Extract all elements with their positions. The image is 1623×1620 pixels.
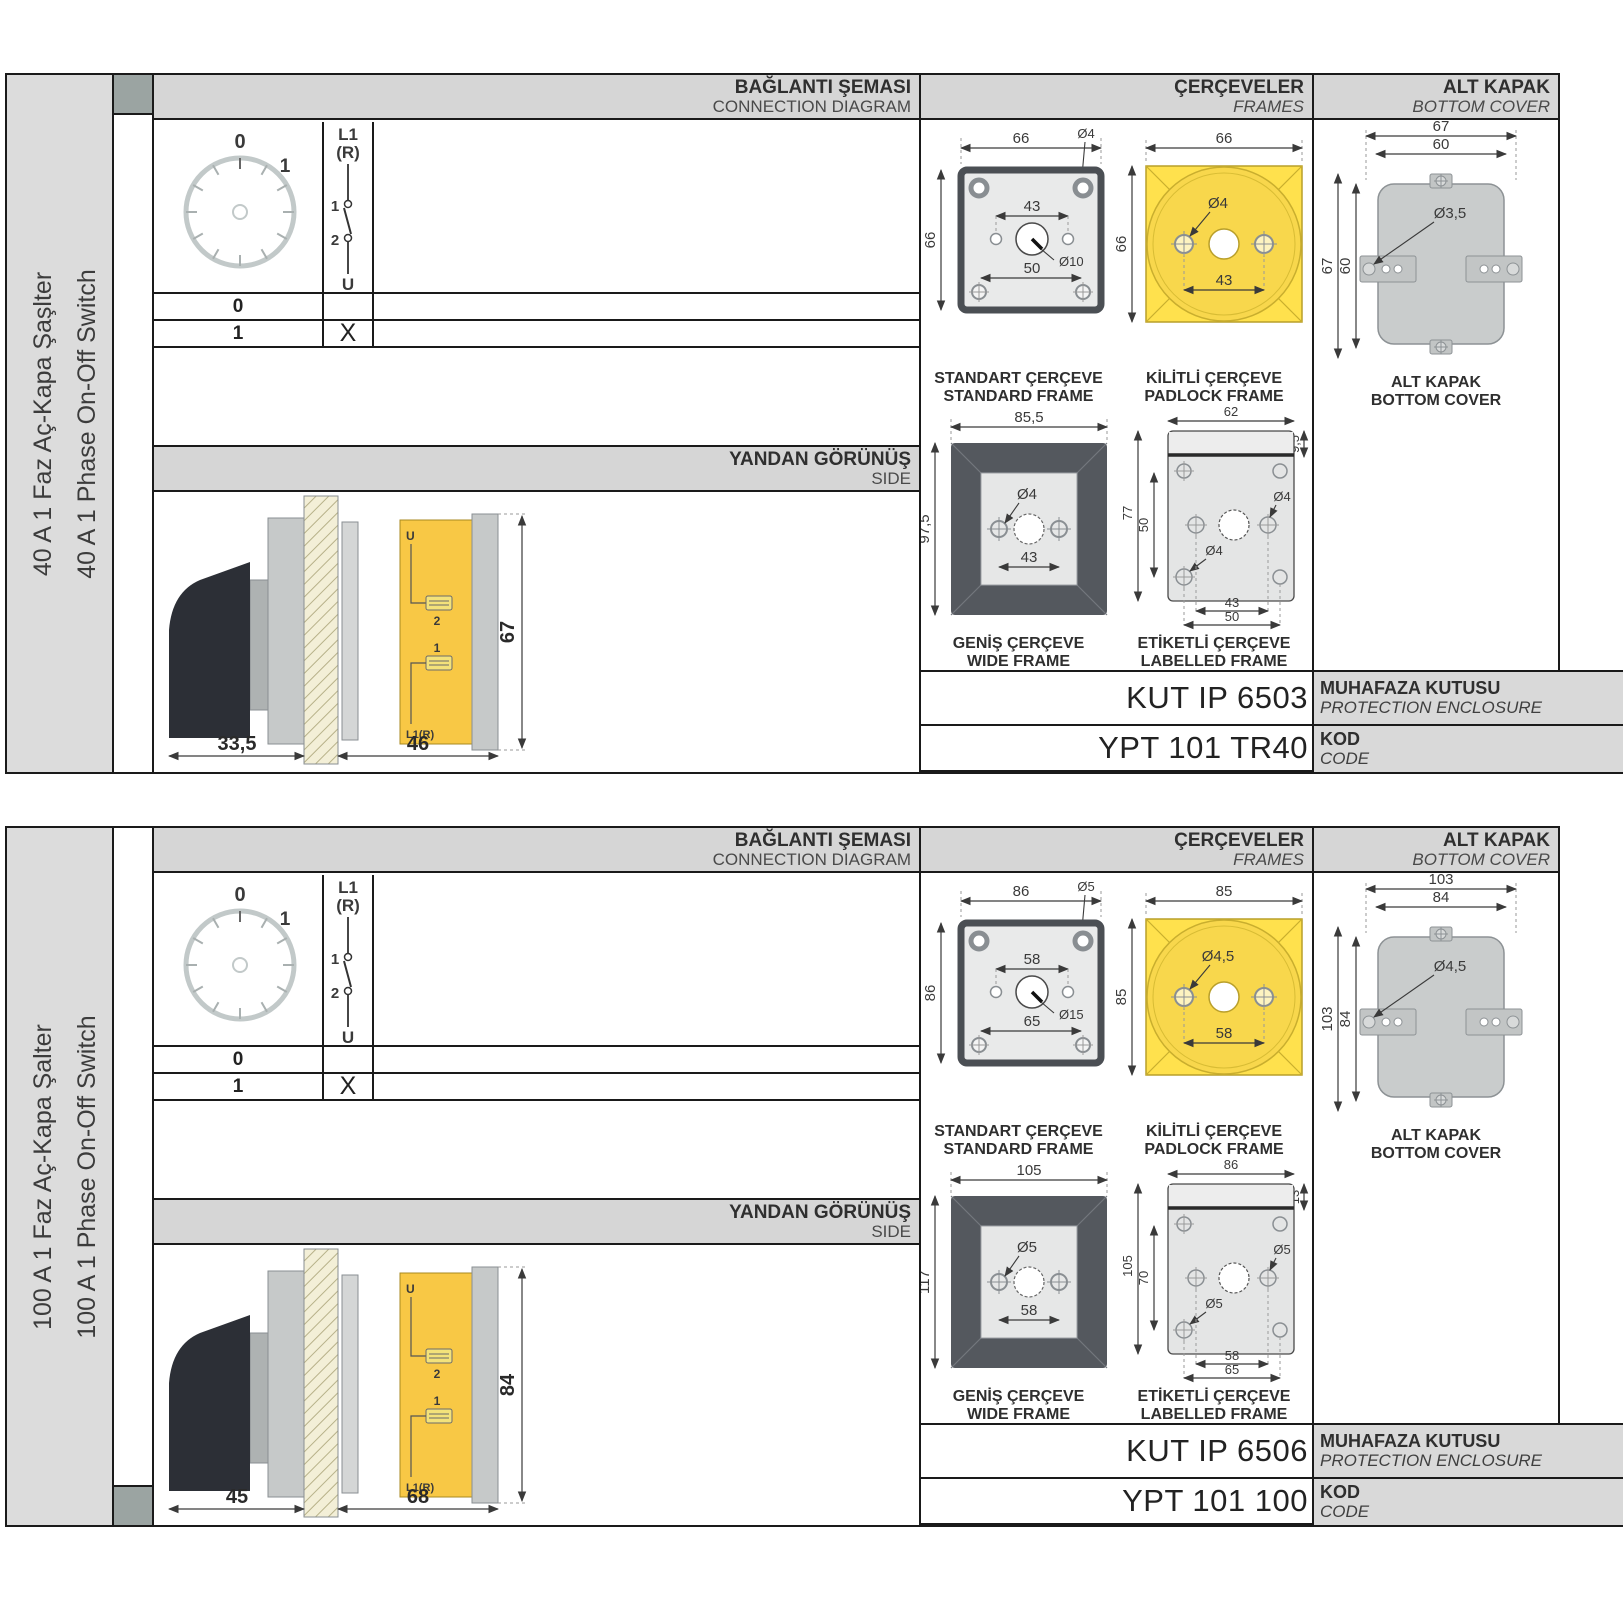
side-view-drawing: U 2 1 L1(R) 33,5 46 67	[154, 492, 919, 772]
frames-title-tr: ÇERÇEVELER	[1174, 831, 1304, 851]
connection-title-tr: BAĞLANTI ŞEMASI	[735, 78, 911, 98]
labelled-frame-caption: ETİKETLİ ÇERÇEVE LABELLED FRAME	[1138, 1388, 1291, 1425]
dial-drawing: 0 1	[154, 122, 322, 292]
phase-label-l1: L1	[338, 125, 358, 144]
padlock-frame-block: 66 66 Ø4	[1116, 120, 1312, 407]
standard-frame-drawing: 86 Ø5 86 58	[921, 873, 1116, 1121]
product-name-turkish: 40 A 1 Faz Aç-Kapa Şaşlter	[29, 271, 58, 575]
lab-dim-width: 86	[1224, 1158, 1238, 1172]
product-name-column: 40 A 1 Faz Aç-Kapa Şaşlter 40 A 1 Phase …	[7, 75, 114, 772]
product-code-cell: YPT 101 TR40	[921, 724, 1312, 772]
panel-main: BAĞLANTI ŞEMASI CONNECTION DIAGRAM ÇERÇE…	[154, 75, 1558, 772]
padlock-frame-drawing: 85 85 Ø4,5	[1116, 873, 1312, 1121]
product-name-english: 100 A 1 Phase On-Off Switch	[73, 1015, 102, 1338]
padlock-frame-caption-tr: KİLİTLİ ÇERÇEVE	[1144, 370, 1283, 388]
lab-dim-spacing2: 65	[1225, 1362, 1239, 1377]
side-view-drawing: U 2 1 L1(R) 45 68 84	[154, 1245, 919, 1525]
padlock-frame-drawing: 66 66 Ø4	[1116, 120, 1312, 368]
labelled-frame-drawing: 86 13 105 70	[1116, 1158, 1312, 1386]
std-dim-top-spacing: 43	[1024, 198, 1041, 215]
bottom-cover-block: 103 84 103 84	[1314, 873, 1558, 1164]
wide-frame-caption-tr: GENİŞ ÇERÇEVE	[953, 1388, 1085, 1406]
std-dim-height: 86	[922, 985, 939, 1002]
cover-dim-h-outer: 67	[1319, 258, 1336, 275]
std-dim-hole: Ø4	[1077, 126, 1094, 141]
std-dim-top-spacing: 58	[1024, 951, 1041, 968]
position-0-contact	[324, 1047, 374, 1072]
frames-header: ÇERÇEVELER FRAMES	[919, 828, 1312, 873]
narrow-spacer-column	[114, 828, 154, 1525]
wide-dim-hole: Ø5	[1017, 1239, 1037, 1256]
terminal-1-label: 1	[331, 951, 339, 968]
frames-header: ÇERÇEVELER FRAMES	[919, 75, 1312, 120]
phase-label-r: (R)	[336, 143, 360, 162]
wide-frame-caption: GENİŞ ÇERÇEVE WIDE FRAME	[953, 1388, 1085, 1425]
std-dim-hole: Ø5	[1077, 879, 1094, 894]
connection-title-en: CONNECTION DIAGRAM	[713, 98, 911, 116]
product-code-cell: YPT 101 100	[921, 1477, 1312, 1525]
bottom-cover-caption-tr: ALT KAPAK	[1371, 374, 1501, 392]
wide-dim-width: 85,5	[1014, 409, 1043, 426]
product-name-turkish: 100 A 1 Faz Aç-Kapa Şalter	[29, 1024, 58, 1330]
frames-title-en: FRAMES	[1233, 98, 1304, 116]
output-label-u: U	[342, 275, 354, 292]
product-panel: 40 A 1 Faz Aç-Kapa Şaşlter 40 A 1 Phase …	[5, 73, 1560, 774]
cover-dim-h-inner: 84	[1337, 1011, 1354, 1028]
cover-dim-hole: Ø4,5	[1434, 958, 1467, 975]
cover-title-tr: ALT KAPAK	[1443, 831, 1550, 851]
bottom-cover-drawing: 103 84 103 84	[1314, 873, 1558, 1125]
dial-position-0: 0	[234, 131, 245, 153]
product-panel: 100 A 1 Faz Aç-Kapa Şalter 100 A 1 Phase…	[5, 826, 1560, 1527]
cover-title-tr: ALT KAPAK	[1443, 78, 1550, 98]
lab-dim-inner-height: 70	[1136, 1271, 1151, 1285]
std-dim-bottom-spacing: 65	[1024, 1013, 1041, 1030]
switch-dial-cell: 0 1	[154, 875, 324, 1045]
enclosure-label-en: PROTECTION ENCLOSURE	[1320, 699, 1623, 718]
wide-frame-caption-tr: GENİŞ ÇERÇEVE	[953, 635, 1085, 653]
dim-body-height: 84	[497, 1373, 519, 1396]
terminal-2-label: 2	[331, 232, 339, 249]
lab-dim-spacing1: 43	[1225, 595, 1239, 610]
pad-dim-width: 85	[1216, 883, 1233, 900]
phase-label-r: (R)	[336, 896, 360, 915]
padlock-frame-caption: KİLİTLİ ÇERÇEVE PADLOCK FRAME	[1144, 370, 1283, 407]
lab-dim-hole1: Ø4	[1273, 489, 1290, 504]
labelled-frame-drawing: 62 9,5 77 50	[1116, 405, 1312, 633]
standard-frame-caption: STANDART ÇERÇEVE STANDARD FRAME	[934, 370, 1103, 407]
switch-dial-cell: 0 1	[154, 122, 324, 292]
enclosure-label-en: PROTECTION ENCLOSURE	[1320, 1452, 1623, 1471]
lab-dim-hole1: Ø5	[1273, 1242, 1290, 1257]
standard-frame-block: 66 Ø4 66 43	[921, 120, 1116, 407]
side-terminal-u: U	[406, 529, 415, 543]
labelled-frame-block: 86 13 105 70	[1116, 1158, 1312, 1425]
side-terminal-2: 2	[434, 1367, 441, 1381]
lab-dim-spacing1: 58	[1225, 1348, 1239, 1363]
lab-dim-hole2: Ø4	[1205, 543, 1222, 558]
bottom-cover-caption: ALT KAPAK BOTTOM COVER	[1371, 1127, 1501, 1164]
wide-dim-height: 97,5	[921, 514, 933, 543]
standard-frame-drawing: 66 Ø4 66 43	[921, 120, 1116, 368]
std-dim-bottom-spacing: 50	[1024, 260, 1041, 277]
cover-dim-h-inner: 60	[1337, 258, 1354, 275]
wide-frame-drawing: 105 117 Ø5	[921, 1158, 1116, 1386]
cover-dim-w-inner: 60	[1433, 136, 1450, 153]
bottom-cover-block: 67 60 67 60	[1314, 120, 1558, 411]
lab-dim-height: 105	[1120, 1255, 1135, 1277]
dial-position-1: 1	[280, 156, 291, 177]
dial-position-1: 1	[280, 909, 291, 930]
standard-frame-block: 86 Ø5 86 58	[921, 873, 1116, 1160]
code-label-box: KOD CODE	[1312, 1477, 1623, 1527]
enclosure-code-value: KUT IP 6506	[1126, 1433, 1308, 1469]
wide-frame-block: 85,5 97,5 Ø4	[921, 405, 1116, 672]
wide-dim-hole: Ø4	[1017, 486, 1037, 503]
wide-frame-caption: GENİŞ ÇERÇEVE WIDE FRAME	[953, 635, 1085, 672]
switch-schematic-drawing: L1 (R) 1 2 U	[324, 875, 372, 1045]
labelled-frame-caption: ETİKETLİ ÇERÇEVE LABELLED FRAME	[1138, 635, 1291, 672]
dim-handle-depth: 45	[226, 1486, 248, 1508]
connection-diagram-box: 0 1 L1 (R) 1 2 U	[154, 875, 919, 1047]
product-code-value: YPT 101 TR40	[1098, 730, 1308, 766]
panel-main: BAĞLANTI ŞEMASI CONNECTION DIAGRAM ÇERÇE…	[154, 828, 1558, 1525]
enclosure-label-tr: MUHAFAZA KUTUSU	[1320, 1432, 1623, 1452]
padlock-frame-caption-tr: KİLİTLİ ÇERÇEVE	[1144, 1123, 1283, 1141]
position-row-1: 1 X	[154, 321, 919, 348]
cover-dim-w-inner: 84	[1433, 889, 1450, 906]
code-label-en: CODE	[1320, 1503, 1623, 1522]
standard-frame-caption-tr: STANDART ÇERÇEVE	[934, 370, 1103, 388]
switch-handle	[169, 562, 250, 738]
cover-title-en: BOTTOM COVER	[1412, 98, 1550, 116]
wide-frame-drawing: 85,5 97,5 Ø4	[921, 405, 1116, 633]
connection-diagram-box: 0 1 L1 (R) 1 2 U	[154, 122, 919, 294]
switch-schematic-cell: L1 (R) 1 2 U	[324, 875, 374, 1045]
lab-dim-hole2: Ø5	[1205, 1296, 1222, 1311]
bottom-cover-drawing: 67 60 67 60	[1314, 120, 1558, 372]
frames-title-tr: ÇERÇEVELER	[1174, 78, 1304, 98]
position-0-label: 0	[154, 294, 324, 319]
bottom-cover-caption-en: BOTTOM COVER	[1371, 1145, 1501, 1163]
enclosure-label-box: MUHAFAZA KUTUSU PROTECTION ENCLOSURE	[1312, 670, 1623, 726]
side-terminal-1: 1	[434, 641, 441, 655]
side-title-tr: YANDAN GÖRÜNÜŞ	[729, 1203, 911, 1223]
code-label-tr: KOD	[1320, 730, 1623, 750]
wide-dim-height: 117	[921, 1270, 933, 1294]
product-name-column: 100 A 1 Faz Aç-Kapa Şalter 100 A 1 Phase…	[7, 828, 114, 1525]
side-title-en: SIDE	[871, 1223, 911, 1241]
corner-marker-square	[114, 75, 152, 115]
position-row-0: 0	[154, 1047, 919, 1074]
connection-diagram-header: BAĞLANTI ŞEMASI CONNECTION DIAGRAM	[154, 828, 919, 873]
enclosure-label-tr: MUHAFAZA KUTUSU	[1320, 679, 1623, 699]
lab-dim-inner-height: 50	[1136, 518, 1151, 532]
terminal-2-label: 2	[331, 985, 339, 1002]
connection-title-tr: BAĞLANTI ŞEMASI	[735, 831, 911, 851]
padlock-frame-block: 85 85 Ø4,5	[1116, 873, 1312, 1160]
enclosure-label-box: MUHAFAZA KUTUSU PROTECTION ENCLOSURE	[1312, 1423, 1623, 1479]
corner-marker-square	[114, 1485, 152, 1525]
wide-dim-spacing: 43	[1021, 549, 1038, 566]
position-0-contact	[324, 294, 374, 319]
product-name-english: 40 A 1 Phase On-Off Switch	[73, 269, 102, 578]
pad-dim-spacing: 58	[1216, 1025, 1233, 1042]
cover-dim-w-outer: 67	[1433, 120, 1450, 135]
standard-frame-caption-tr: STANDART ÇERÇEVE	[934, 1123, 1103, 1141]
wide-dim-width: 105	[1016, 1162, 1041, 1179]
labelled-frame-block: 62 9,5 77 50	[1116, 405, 1312, 672]
phase-label-l1: L1	[338, 878, 358, 897]
dim-body-depth: 46	[407, 733, 429, 755]
lab-dim-height: 77	[1120, 506, 1135, 520]
cover-dim-w-outer: 103	[1428, 873, 1453, 888]
position-1-label: 1	[154, 1074, 324, 1099]
side-view-header: YANDAN GÖRÜNÜŞ SIDE	[154, 1198, 919, 1245]
cover-dim-h-outer: 103	[1319, 1006, 1336, 1031]
std-dim-width: 66	[1013, 130, 1030, 147]
output-label-u: U	[342, 1028, 354, 1045]
catalog-page: { "common": { "connection_title": "BAĞLA…	[0, 0, 1623, 1620]
std-dim-center-hole: Ø10	[1059, 254, 1084, 269]
enclosure-code-value: KUT IP 6503	[1126, 680, 1308, 716]
pad-dim-hole: Ø4,5	[1202, 948, 1235, 965]
position-1-label: 1	[154, 321, 324, 346]
cover-dim-hole: Ø3,5	[1434, 205, 1467, 222]
lab-dim-spacing2: 50	[1225, 609, 1239, 624]
pad-dim-hole: Ø4	[1208, 195, 1228, 212]
dial-drawing: 0 1	[154, 875, 322, 1045]
side-title-en: SIDE	[871, 470, 911, 488]
dial-position-0: 0	[234, 884, 245, 906]
labelled-frame-caption-tr: ETİKETLİ ÇERÇEVE	[1138, 1388, 1291, 1406]
terminal-1-label: 1	[331, 198, 339, 215]
position-row-1: 1 X	[154, 1074, 919, 1101]
switch-schematic-cell: L1 (R) 1 2 U	[324, 122, 374, 292]
lab-dim-width: 62	[1224, 405, 1238, 419]
side-terminal-1: 1	[434, 1394, 441, 1408]
position-1-contact: X	[324, 1074, 374, 1099]
cover-title-en: BOTTOM COVER	[1412, 851, 1550, 869]
code-label-tr: KOD	[1320, 1483, 1623, 1503]
standard-frame-caption: STANDART ÇERÇEVE STANDARD FRAME	[934, 1123, 1103, 1160]
wide-dim-spacing: 58	[1021, 1302, 1038, 1319]
position-1-contact: X	[324, 321, 374, 346]
product-code-value: YPT 101 100	[1122, 1483, 1308, 1519]
position-0-label: 0	[154, 1047, 324, 1072]
enclosure-code-cell: KUT IP 6503	[921, 670, 1312, 724]
labelled-frame-caption-tr: ETİKETLİ ÇERÇEVE	[1138, 635, 1291, 653]
connection-title-en: CONNECTION DIAGRAM	[713, 851, 911, 869]
bottom-cover-header: ALT KAPAK BOTTOM COVER	[1312, 75, 1558, 120]
code-label-en: CODE	[1320, 750, 1623, 769]
padlock-frame-caption: KİLİTLİ ÇERÇEVE PADLOCK FRAME	[1144, 1123, 1283, 1160]
bottom-cover-caption-tr: ALT KAPAK	[1371, 1127, 1501, 1145]
frames-title-en: FRAMES	[1233, 851, 1304, 869]
dim-handle-depth: 33,5	[218, 733, 257, 755]
side-view-header: YANDAN GÖRÜNÜŞ SIDE	[154, 445, 919, 492]
dim-body-height: 67	[497, 621, 519, 643]
code-label-box: KOD CODE	[1312, 724, 1623, 774]
switch-handle	[169, 1315, 250, 1491]
bottom-cover-caption-en: BOTTOM COVER	[1371, 392, 1501, 410]
wide-frame-block: 105 117 Ø5	[921, 1158, 1116, 1425]
pad-dim-height: 66	[1116, 236, 1130, 253]
bottom-cover-header: ALT KAPAK BOTTOM COVER	[1312, 828, 1558, 873]
pad-dim-height: 85	[1116, 989, 1130, 1006]
narrow-spacer-column	[114, 75, 154, 772]
std-dim-height: 66	[922, 232, 939, 249]
connection-diagram-header: BAĞLANTI ŞEMASI CONNECTION DIAGRAM	[154, 75, 919, 120]
dim-body-depth: 68	[407, 1486, 429, 1508]
side-terminal-2: 2	[434, 614, 441, 628]
pad-dim-spacing: 43	[1216, 272, 1233, 289]
enclosure-code-cell: KUT IP 6506	[921, 1423, 1312, 1477]
switch-schematic-drawing: L1 (R) 1 2 U	[324, 122, 372, 292]
bottom-cover-caption: ALT KAPAK BOTTOM COVER	[1371, 374, 1501, 411]
std-dim-center-hole: Ø15	[1059, 1007, 1084, 1022]
position-row-0: 0	[154, 294, 919, 321]
std-dim-width: 86	[1013, 883, 1030, 900]
side-terminal-u: U	[406, 1282, 415, 1296]
side-title-tr: YANDAN GÖRÜNÜŞ	[729, 450, 911, 470]
pad-dim-width: 66	[1216, 130, 1233, 147]
